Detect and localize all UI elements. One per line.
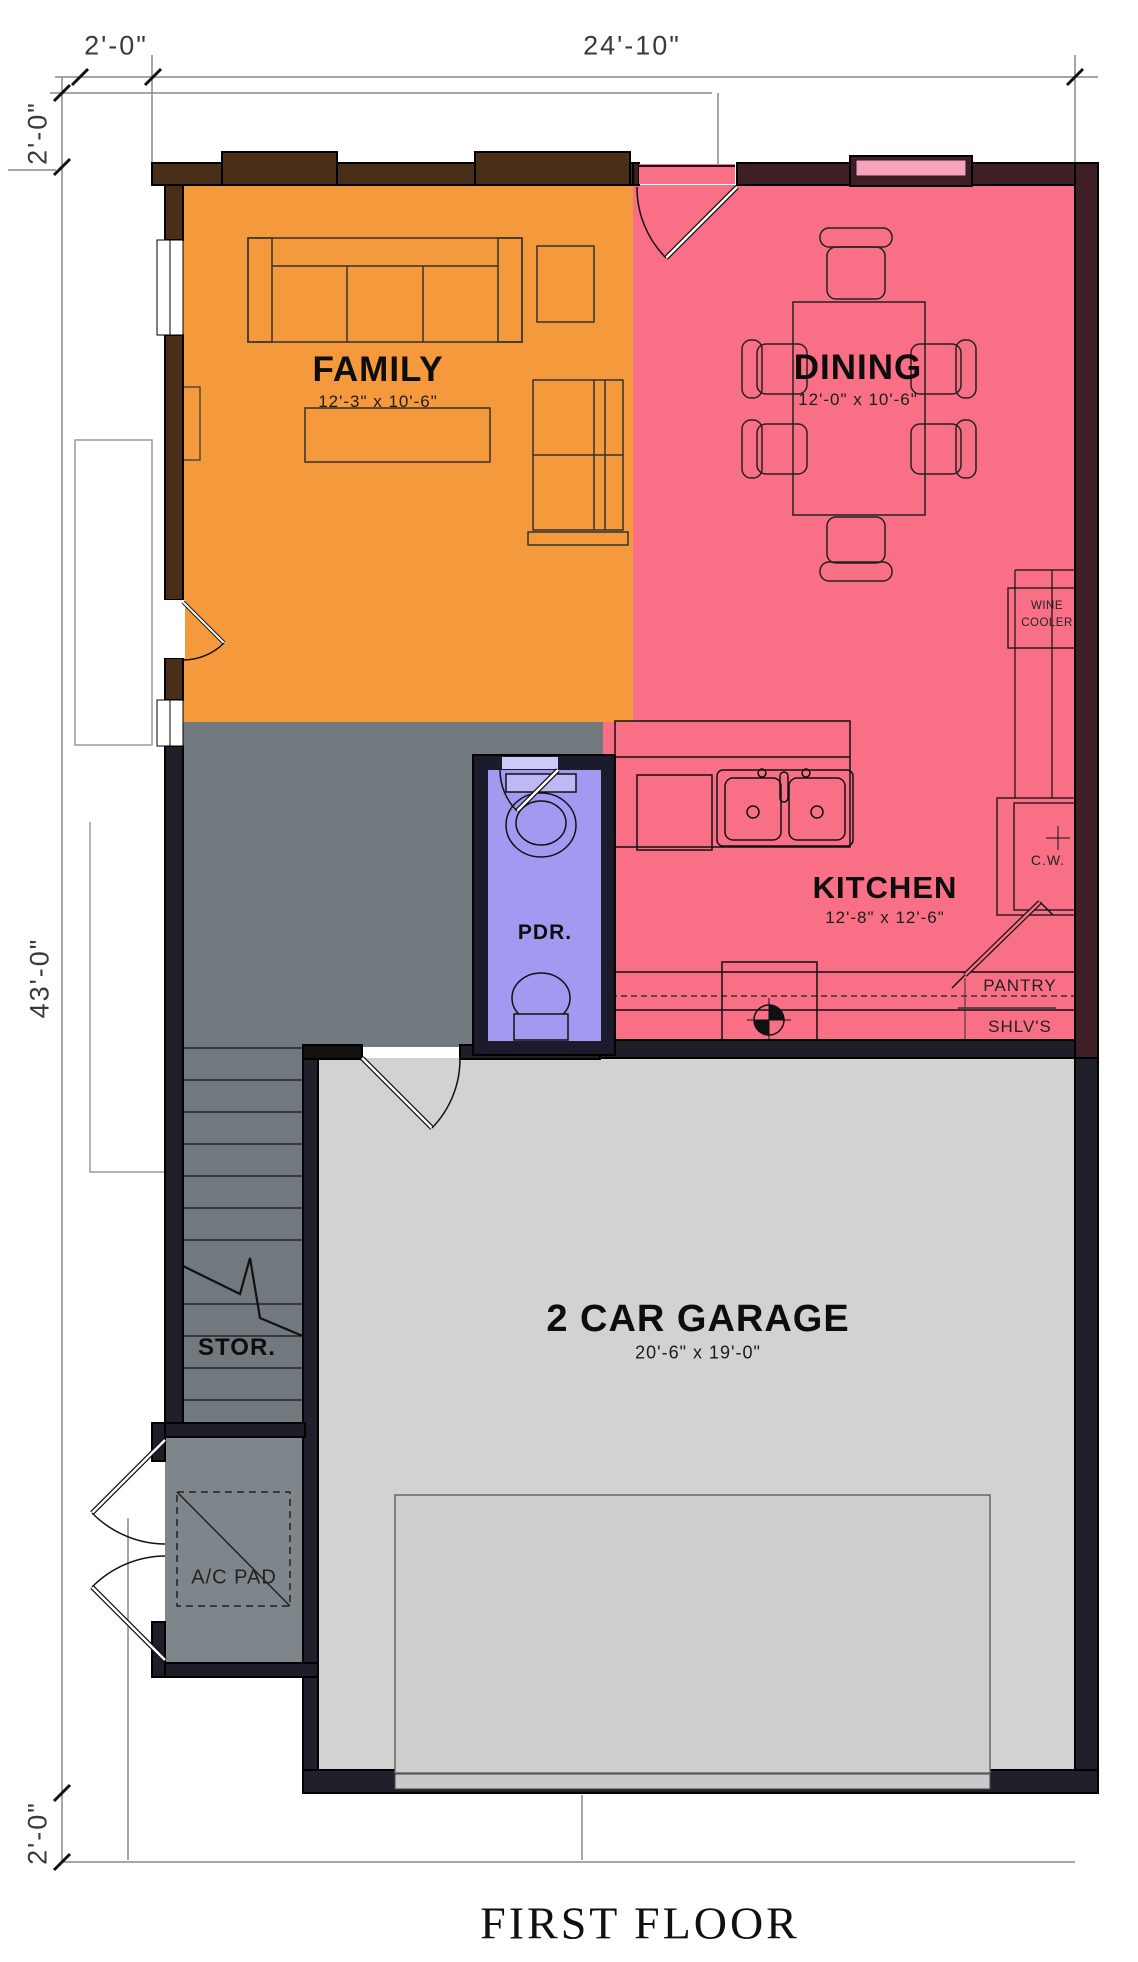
garage-door-header (303, 1045, 362, 1059)
stairwell-floor (183, 1045, 303, 1423)
cw-label: C.W. (1031, 852, 1065, 868)
floor-plan: 2'-0" 24'-10" 2'-0" 43'-0" 2'-0" FAMILY … (0, 0, 1138, 1962)
garage-door-panel (395, 1774, 990, 1789)
family-room-label: FAMILY (312, 350, 443, 390)
dim-top-width: 24'-10" (583, 30, 681, 61)
pantry-shelves-label: SHLV'S (988, 1017, 1052, 1037)
left-wall-lower (165, 746, 183, 1423)
kitchen-label: KITCHEN (813, 870, 958, 906)
right-wall-lower (1075, 1058, 1098, 1793)
left-wall-upper (165, 185, 183, 240)
floor-plan-drawing (0, 0, 1138, 1962)
dining-room-label: DINING (794, 348, 923, 388)
dining-room-floor (633, 185, 1075, 722)
dim-top-offset: 2'-0" (84, 30, 148, 61)
garage-parking-area (395, 1495, 990, 1773)
patio-top-wall (165, 1423, 305, 1437)
ac-pad-label: A/C PAD (191, 1567, 277, 1590)
storage-label: STOR. (198, 1334, 276, 1362)
powder-room-floor (488, 770, 601, 1041)
garage-size: 20'-6" x 19'-0" (635, 1343, 761, 1364)
pantry-label: PANTRY (983, 976, 1056, 996)
exterior-projection-outlines (75, 440, 165, 1172)
dining-window (856, 160, 966, 176)
garage-label: 2 CAR GARAGE (546, 1298, 849, 1342)
patio-bottom-wall (152, 1663, 318, 1677)
kitchen-bottom-wall (597, 1040, 1075, 1058)
dim-left-height: 43'-0" (24, 938, 55, 1019)
dim-left-offset-top: 2'-0" (22, 101, 53, 165)
family-room-size: 12'-3" x 10'-6" (318, 392, 438, 412)
kitchen-size: 12'-8" x 12'-6" (825, 908, 945, 928)
dining-room-size: 12'-0" x 10'-6" (798, 390, 918, 410)
powder-room (473, 755, 615, 1055)
sheet-title: FIRST FLOOR (480, 1898, 800, 1951)
dim-left-offset-bottom: 2'-0" (22, 1801, 53, 1865)
wine-cooler-label: WINE COOLER (1007, 598, 1087, 633)
powder-room-label: PDR. (518, 921, 572, 945)
